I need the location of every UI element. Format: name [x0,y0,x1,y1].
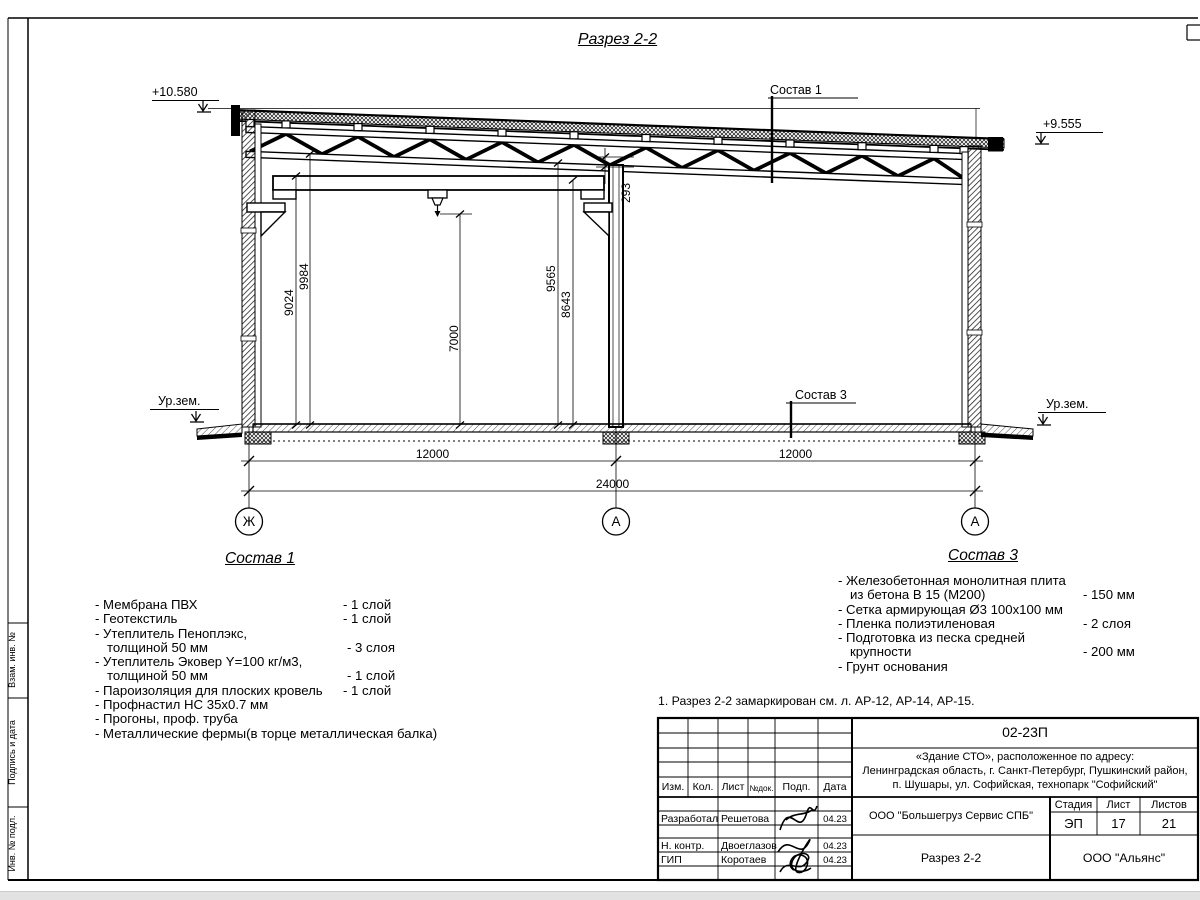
elevation-mark-left: +10.580 [152,85,198,99]
row-date-checker: 04.23 [818,841,852,852]
layer-item: - Грунт основания [838,660,1178,674]
sostav1-list: - Мембрана ПВХ- 1 слой - Геотекстиль- 1 … [95,598,475,741]
layer-item: - Сетка армирующая Ø3 100х100 мм [838,603,1178,617]
dim-9565: 9565 [544,265,558,292]
company: ООО "Альянс" [1050,851,1198,865]
dim-total: 24000 [575,477,650,491]
layer-item: толщиной 50 мм- 1 слой [95,669,475,683]
layer-item: - Железобетонная монолитная плита [838,574,1178,588]
row-name-gip: Коротаев [721,854,766,866]
address-line2: Ленинградская область, г. Санкт-Петербур… [856,765,1194,777]
corbel-right-brace [584,212,609,236]
col-list: Лист [718,781,748,793]
layer-item: толщиной 50 мм- 3 слоя [95,641,475,655]
layer-name: - Геотекстиль [95,612,177,626]
col-data: Дата [818,781,852,793]
corbel-left-brace [261,212,285,236]
layer-item: - Профнастил НС 35х0.7 мм [95,698,475,712]
contractor: ООО "Большегруз Сервис СПБ" [854,810,1048,822]
crane-beam [247,176,612,236]
layer-item: из бетона В 15 (М200)- 150 мм [838,588,1178,602]
sheet-value: 17 [1097,816,1140,831]
frame-label-vzam: Взам. инв. № [7,624,17,696]
floor-callout: Состав 3 [795,388,847,402]
dim-9024: 9024 [282,289,296,316]
frame-label-podpis: Подпись и дата [7,700,17,805]
floor-slab [253,424,971,432]
layer-qty: - 150 мм [1083,588,1135,602]
layer-item: - Мембрана ПВХ- 1 слой [95,598,475,612]
dim-span-right: 12000 [758,447,833,461]
layer-qty: - 3 слоя [347,641,395,655]
row-name-developer: Решетова [721,813,769,825]
dim-8643: 8643 [559,291,573,318]
roof-end-cap-right [988,137,1003,152]
stage-label: Стадия [1050,799,1097,811]
row-role-checker: Н. контр. [661,840,704,852]
layer-qty: - 1 слой [343,598,391,612]
col-kol: Кол. [688,781,718,793]
axis-letter-zh: Ж [235,514,263,529]
note: 1. Разрез 2-2 замаркирован см. л. АР-12,… [658,694,975,708]
sostav1-title: Состав 1 [225,550,295,568]
layer-item: - Геотекстиль- 1 слой [95,612,475,626]
sheet-label: Лист [1097,799,1140,811]
sheets-label: Листов [1140,799,1198,811]
layer-item: - Металлические фермы(в торце металличес… [95,727,475,741]
dim-293: 293 [619,183,633,203]
row-date-developer: 04.23 [818,814,852,825]
axis-letter-a-mid: А [602,514,630,529]
layer-name: - Профнастил НС 35х0.7 мм [95,698,268,712]
right-wall-panel [968,146,981,427]
signature-developer [780,806,817,830]
layer-name: - Пленка полиэтиленовая [838,617,995,631]
layer-item: крупности- 200 мм [838,645,1178,659]
horizontal-scrollbar[interactable] [0,891,1200,900]
ground-level-right: Ур.зем. [1046,397,1088,411]
layer-name: крупности [838,645,911,659]
layer-name: - Утеплитель Пеноплэкс, [95,627,247,641]
hoist [428,190,447,217]
ground-level-left: Ур.зем. [158,394,200,408]
left-wall-panel [242,110,255,427]
row-date-gip: 04.23 [818,855,852,866]
layer-qty: - 1 слой [347,669,395,683]
layer-item: - Пленка полиэтиленовая- 2 слоя [838,617,1178,631]
layer-name: - Грунт основания [838,660,948,674]
sheets-value: 21 [1140,816,1198,831]
layer-qty: - 1 слой [343,684,391,698]
sostav3-list: - Железобетонная монолитная плита из бет… [838,574,1178,674]
corbel-left-plate [247,203,285,212]
layer-qty: - 2 слоя [1083,617,1131,631]
layer-name: - Металлические фермы(в торце металличес… [95,727,437,741]
layer-item: - Утеплитель Пеноплэкс, [95,627,475,641]
drawing-title: Разрез 2-2 [500,31,735,49]
layer-item: - Пароизоляция для плоских кровель- 1 сл… [95,684,475,698]
layer-name: толщиной 50 мм [95,669,208,683]
row-role-developer: Разработал [661,813,718,825]
layer-name: - Утеплитель Эковер Y=100 кг/м3, [95,655,302,669]
titleblock-drawing-name: Разрез 2-2 [852,851,1050,865]
sostav3-title: Состав 3 [948,547,1018,565]
elevation-mark-right: +9.555 [1043,117,1082,131]
dim-7000: 7000 [447,325,461,352]
layer-name: - Железобетонная монолитная плита [838,574,1066,588]
layer-item: - Утеплитель Эковер Y=100 кг/м3, [95,655,475,669]
roof-callout: Состав 1 [770,83,822,97]
dim-9984: 9984 [297,263,311,290]
dim-span-left: 12000 [395,447,470,461]
ground [197,424,1033,444]
corbel-right-plate [584,203,612,212]
layer-item: - Прогоны, проф. труба [95,712,475,726]
layer-name: - Прогоны, проф. труба [95,712,238,726]
layer-name: - Мембрана ПВХ [95,598,197,612]
layer-qty: - 200 мм [1083,645,1135,659]
layer-name: толщиной 50 мм [95,641,208,655]
col-ndok: №док. [748,784,775,793]
layer-item: - Подготовка из песка средней [838,631,1178,645]
address-line3: п. Шушары, ул. Софийская, технопарк "Соф… [856,779,1194,791]
layer-name: из бетона В 15 (М200) [838,588,985,602]
axis-letter-a-right: А [961,514,989,529]
row-name-checker: Двоеглазов [721,840,777,852]
layer-qty: - 1 слой [343,612,391,626]
roof-end-cap-left [231,105,240,136]
layer-name: - Сетка армирующая Ø3 100х100 мм [838,603,1063,617]
col-podp: Подп. [775,781,818,793]
signatures [778,806,817,873]
doc-number: 02-23П [852,724,1198,740]
left-column [255,124,261,427]
address-line1: «Здание СТО», расположенное по адресу: [856,751,1194,763]
layer-name: - Пароизоляция для плоских кровель [95,684,323,698]
frame-label-inv: Инв. № подл. [7,809,17,878]
col-izm: Изм. [658,781,688,793]
layer-name: - Подготовка из песка средней [838,631,1025,645]
row-role-gip: ГИП [661,854,682,866]
right-column [962,152,968,427]
sheet: Разрез 2-2 +10.580 +9.555 Состав 1 Соста… [0,0,1200,900]
stage-value: ЭП [1050,816,1097,831]
